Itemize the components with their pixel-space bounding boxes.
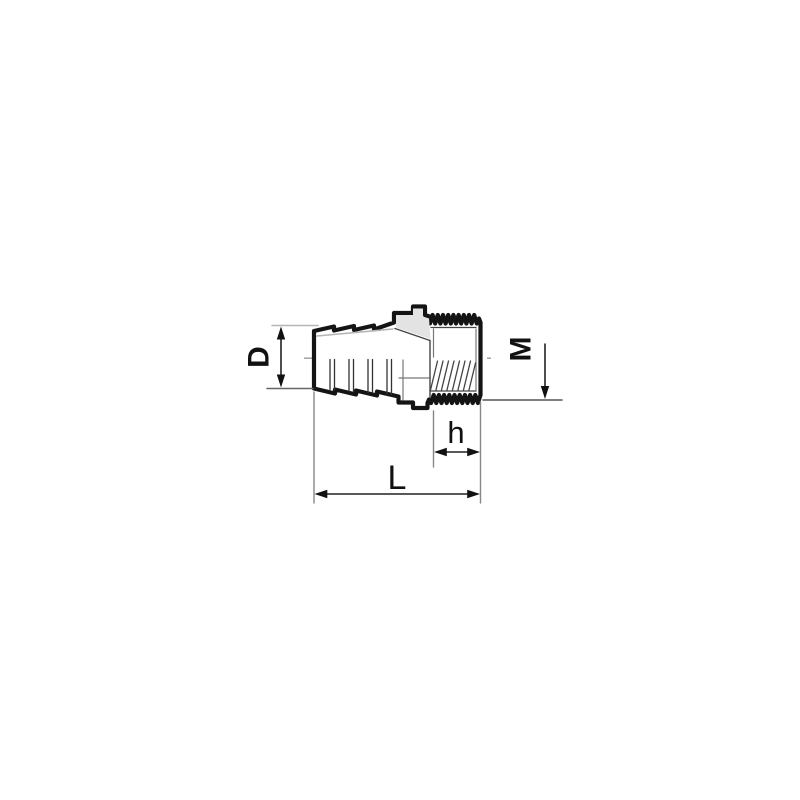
dimension-D-label: D xyxy=(243,346,276,368)
dimension-D-arrow-down-icon xyxy=(277,375,285,388)
dimension-L-label: L xyxy=(388,459,407,497)
dimension-h-label: h xyxy=(447,415,464,450)
dimension-M-arrow-down-icon xyxy=(541,386,549,399)
dimension-h-arrow-left-icon xyxy=(434,448,447,456)
dimension-L-arrow-right-icon xyxy=(467,490,480,498)
dimension-M: M xyxy=(483,337,562,401)
dimension-D: D xyxy=(243,326,319,389)
dimension-h: h xyxy=(434,402,481,503)
technical-drawing: D M h L xyxy=(0,0,800,800)
dimension-L-arrow-left-icon xyxy=(315,490,328,498)
dimension-h-arrow-right-icon xyxy=(467,448,480,456)
dimension-M-label: M xyxy=(505,337,538,362)
drawing-canvas: D M h L xyxy=(0,0,800,800)
dimension-D-arrow-up-icon xyxy=(277,327,285,340)
fitting-outline xyxy=(314,307,481,409)
